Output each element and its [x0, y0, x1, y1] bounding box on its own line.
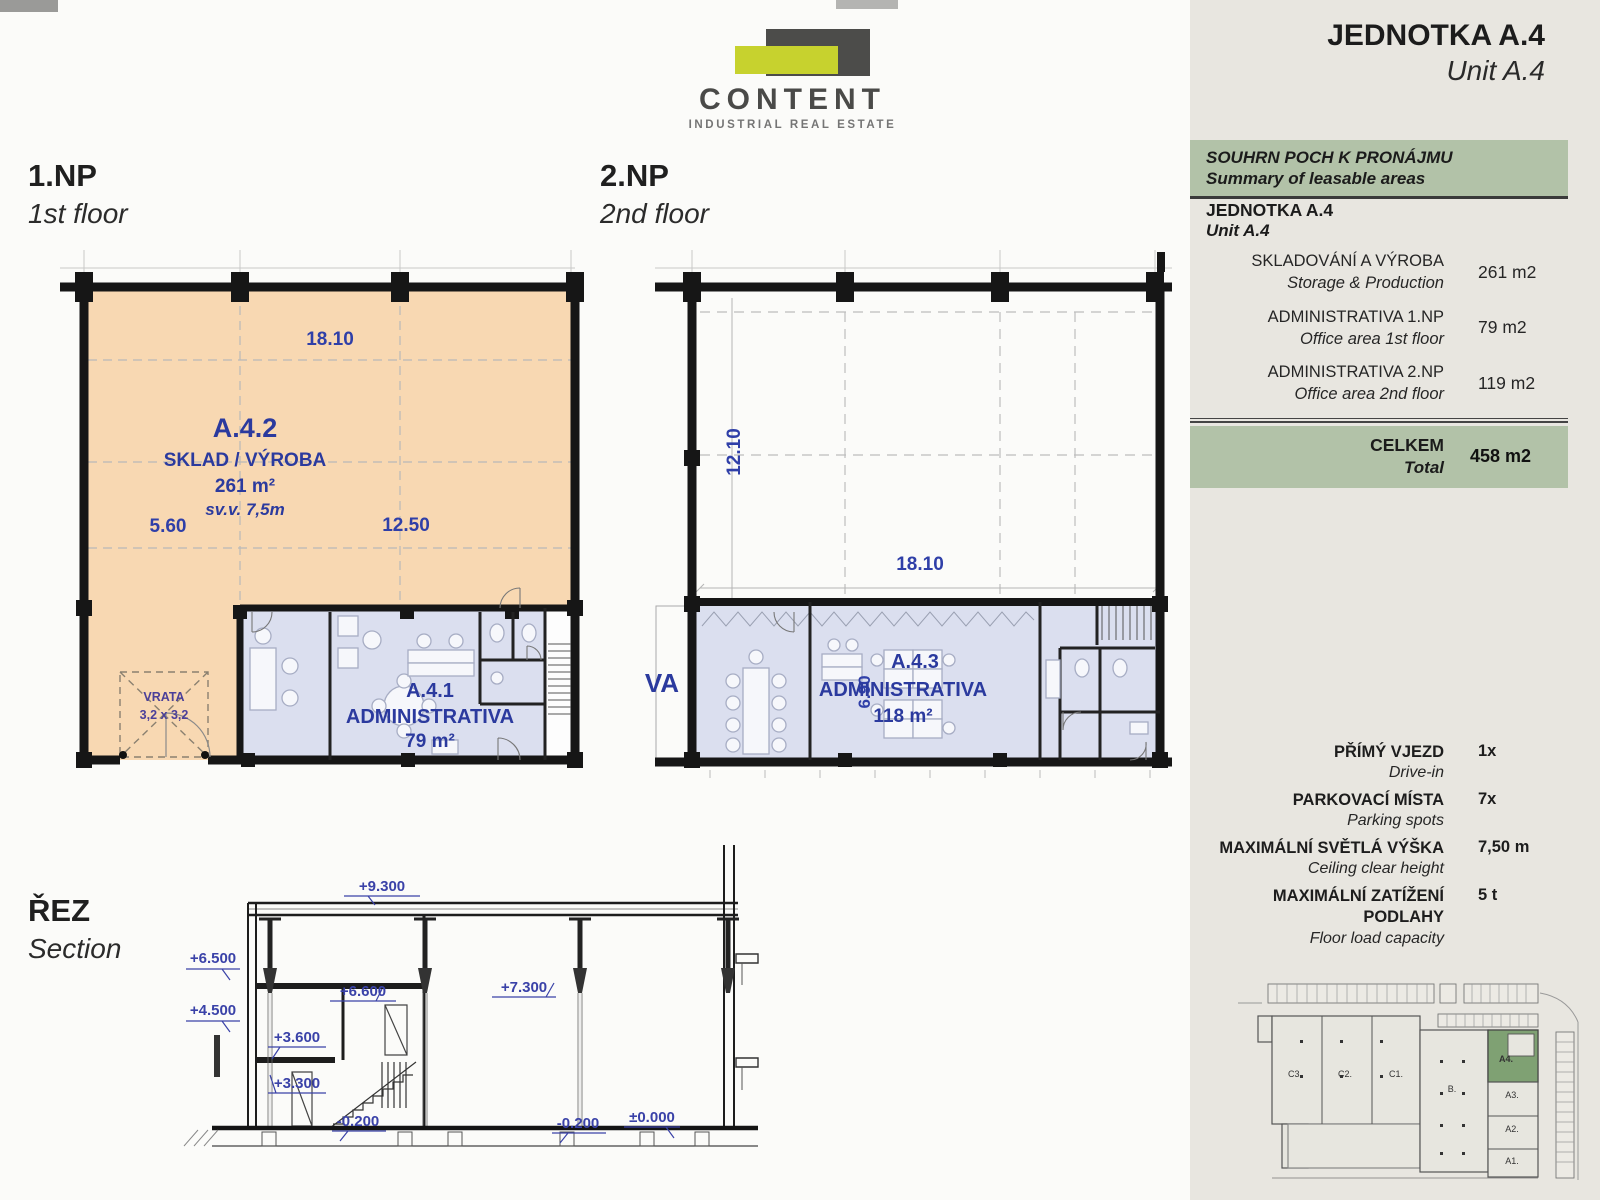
desk [408, 650, 474, 663]
level-3300: +3.300 [274, 1075, 320, 1092]
level-4500: +4.500 [190, 1002, 236, 1019]
gate-hinge [201, 751, 209, 759]
row-label: ADMINISTRATIVA 2.NP Office area 2nd floo… [1190, 361, 1460, 406]
total-divider [1190, 418, 1568, 423]
parking-strip [1268, 984, 1434, 1003]
chair [282, 690, 298, 706]
row-label-en: Office area 2nd floor [1190, 383, 1444, 405]
office2-name-label: ADMINISTRATIVA [819, 679, 987, 701]
table-row: ADMINISTRATIVA 1.NP Office area 1st floo… [1190, 306, 1600, 351]
wc-fixture [1075, 659, 1089, 677]
desk [822, 654, 862, 667]
office1-area-label: 79 m² [405, 731, 455, 752]
chair [772, 718, 786, 732]
floorplan-1st: 18.10 5.60 12.50 A.4.2 SKLAD / VÝROBA 26… [60, 250, 584, 768]
total-value: 458 m2 [1460, 434, 1568, 479]
level-6500: +6.500 [190, 950, 236, 967]
spec-value: 7x [1460, 790, 1600, 838]
level-leaders [186, 896, 680, 1143]
total-label-en: Total [1190, 457, 1444, 479]
armchair [338, 648, 358, 668]
building-lower [1288, 1124, 1420, 1168]
chair [772, 738, 786, 752]
level-7300: +7.300 [501, 979, 547, 996]
siteplan-label-a4: A4. [1499, 1054, 1513, 1064]
siteplan: C3. C2. C1. B. A4. A3. A2. A1. [1235, 950, 1600, 1185]
chair [449, 634, 463, 648]
total-row: CELKEM Total 458 m2 [1190, 426, 1568, 488]
floorplan-2nd: 12.10 18.10 6.90 A.4.3 ADMINISTRATIVA 11… [645, 250, 1172, 778]
chair [871, 654, 883, 666]
spec-label-en: Drive-in [1190, 763, 1444, 784]
a4-inner-structure [1508, 1034, 1534, 1056]
adjacent-unit-partial-label: VA [645, 668, 679, 698]
stair-area [545, 608, 571, 760]
row-label-en: Office area 1st floor [1190, 328, 1444, 350]
unit-row: JEDNOTKA A.4 Unit A.4 [1206, 200, 1333, 241]
desk [250, 648, 276, 710]
siteplan-label-c1: C1. [1389, 1069, 1403, 1079]
spec-label: PŘÍMÝ VJEZD Drive-in [1190, 742, 1460, 790]
row-label: SKLADOVÁNÍ A VÝROBA Storage & Production [1190, 250, 1460, 295]
chair [943, 722, 955, 734]
spec-row: MAXIMÁLNÍ SVĚTLÁ VÝŠKA Ceiling clear hei… [1190, 838, 1600, 886]
armchair [338, 616, 358, 636]
spec-row: PŘÍMÝ VJEZD Drive-in 1x [1190, 742, 1600, 790]
plan2-dim-top: 18.10 [896, 554, 944, 575]
spec-label-cz: PARKOVACÍ MÍSTA [1190, 790, 1444, 811]
bottom-ticks [710, 770, 1150, 778]
chair [417, 634, 431, 648]
chair [749, 650, 763, 664]
level-3600: +3.600 [274, 1029, 320, 1046]
unit-subtitle: Unit A.4 [1327, 54, 1545, 88]
chair [726, 738, 740, 752]
canopy-ledges [736, 954, 758, 1067]
spec-label-en: Floor load capacity [1190, 929, 1444, 950]
dimension-line-2 [655, 250, 1172, 275]
level-m0200-right: -0.200 [557, 1115, 600, 1132]
hall-code-label: A.4.2 [213, 413, 278, 443]
coffee-table [363, 631, 381, 649]
chair [726, 696, 740, 710]
wc-fixture [522, 624, 536, 642]
parking-strip [1464, 984, 1538, 1003]
building-b [1420, 1030, 1488, 1172]
siteplan-label-b: B. [1448, 1084, 1457, 1094]
spec-label-cz: MAXIMÁLNÍ SVĚTLÁ VÝŠKA [1190, 838, 1444, 859]
office1-name-label: ADMINISTRATIVA [346, 706, 514, 728]
spec-value: 5 t [1460, 886, 1600, 934]
spec-label-cz: PŘÍMÝ VJEZD [1190, 742, 1444, 763]
spec-label-en: Ceiling clear height [1190, 859, 1444, 880]
chair [255, 628, 271, 644]
summary-table: SKLADOVÁNÍ A VÝROBA Storage & Production… [1190, 250, 1600, 417]
building-annex [1258, 1016, 1272, 1042]
summary-sidebar: JEDNOTKA A.4 Unit A.4 SOUHRN POCH K PRON… [1190, 0, 1600, 1200]
wc-fixture [1113, 659, 1127, 677]
chair [943, 654, 955, 666]
plan1-dim-top: 18.10 [306, 329, 354, 350]
total-label-cz: CELKEM [1190, 434, 1444, 457]
spec-row: PARKOVACÍ MÍSTA Parking spots 7x [1190, 790, 1600, 838]
hall-area-label: 261 m² [215, 476, 275, 497]
chair [726, 674, 740, 688]
level-0000: ±0.000 [629, 1109, 675, 1126]
wc-fixture [490, 624, 504, 642]
spec-label-cz: MAXIMÁLNÍ ZATÍŽENÍ PODLAHY [1190, 886, 1444, 929]
siteplan-label-a1: A1. [1505, 1156, 1519, 1166]
row-label-cz: ADMINISTRATIVA 1.NP [1190, 306, 1444, 328]
column-tapers [263, 968, 735, 993]
level-m0200-left: -0.200 [337, 1113, 380, 1130]
chair [828, 639, 840, 651]
parking-strip [1556, 1032, 1574, 1178]
level-9300: +9.300 [359, 878, 405, 895]
gate-hinge [119, 751, 127, 759]
desk [1046, 660, 1060, 698]
unit-row-cz: JEDNOTKA A.4 [1206, 200, 1333, 221]
siteplan-label-c2: C2. [1338, 1069, 1352, 1079]
chair [772, 696, 786, 710]
sidebar-header: JEDNOTKA A.4 Unit A.4 [1327, 18, 1545, 88]
ground-hatch [184, 1130, 218, 1146]
unit-title: JEDNOTKA A.4 [1327, 18, 1545, 54]
footings [262, 1132, 709, 1146]
row-label: ADMINISTRATIVA 1.NP Office area 1st floo… [1190, 306, 1460, 351]
spec-label: MAXIMÁLNÍ ZATÍŽENÍ PODLAHY Floor load ca… [1190, 886, 1460, 934]
chair [282, 658, 298, 674]
row-value: 79 m2 [1460, 306, 1600, 351]
summary-header-cz: SOUHRN POCH K PRONÁJMU [1206, 147, 1568, 168]
table-row: SKLADOVÁNÍ A VÝROBA Storage & Production… [1190, 250, 1600, 295]
spec-label-en: Parking spots [1190, 811, 1444, 832]
column-stems [270, 919, 728, 968]
hall-height-label: sv.v. 7,5m [205, 500, 284, 519]
plan1-dim-right: 12.50 [382, 515, 430, 536]
spec-row: MAXIMÁLNÍ ZATÍŽENÍ PODLAHY Floor load ca… [1190, 886, 1600, 934]
office2-area-label: 118 m² [873, 706, 932, 727]
dim-reference-lines [696, 298, 1161, 598]
parking-strip [1440, 984, 1456, 1003]
window-mark [214, 1035, 220, 1077]
spec-value: 1x [1460, 742, 1600, 790]
plan2-dim-left: 12.10 [724, 428, 745, 476]
row-label-cz: SKLADOVÁNÍ A VÝROBA [1190, 250, 1444, 272]
chair [846, 639, 858, 651]
steel-columns [259, 919, 739, 1128]
plan1-dim-left: 5.60 [150, 516, 187, 537]
office2-code-label: A.4.3 [891, 651, 939, 673]
gate-label-2: 3,2 x 3,2 [140, 708, 189, 722]
table-row: ADMINISTRATIVA 2.NP Office area 2nd floo… [1190, 361, 1600, 406]
sink [491, 672, 503, 684]
chair [772, 674, 786, 688]
unit-row-en: Unit A.4 [1206, 221, 1333, 241]
section-drawing: +9.300 +6.500 +4.500 +6.600 +7.300 +3.60… [184, 845, 758, 1146]
row-value: 119 m2 [1460, 361, 1600, 406]
spec-value: 7,50 m [1460, 838, 1600, 886]
parking-strip [1438, 1014, 1538, 1027]
siteplan-label-c3: C3. [1288, 1069, 1302, 1079]
summary-header-en: Summary of leasable areas [1206, 168, 1568, 189]
office1-code-label: A.4.1 [406, 680, 454, 702]
siteplan-label-a2: A2. [1505, 1124, 1519, 1134]
meeting-table [743, 668, 769, 754]
dimension-line [60, 250, 575, 275]
cabinet [1130, 722, 1148, 734]
total-label: CELKEM Total [1190, 434, 1460, 479]
summary-header-band: SOUHRN POCH K PRONÁJMU Summary of leasab… [1190, 140, 1568, 199]
chair [726, 718, 740, 732]
hall-name-label: SKLAD / VÝROBA [164, 449, 327, 471]
row-label-en: Storage & Production [1190, 272, 1444, 294]
row-value: 261 m2 [1460, 250, 1600, 295]
desk [408, 663, 474, 676]
gate-label-1: VRATA [143, 690, 184, 704]
row-label-cz: ADMINISTRATIVA 2.NP [1190, 361, 1444, 383]
section-doors [292, 1005, 407, 1126]
brochure-page: CONTENT INDUSTRIAL REAL ESTATE 1.NP 1st … [0, 0, 1600, 1200]
specs-list: PŘÍMÝ VJEZD Drive-in 1x PARKOVACÍ MÍSTA … [1190, 742, 1600, 934]
level-6600: +6.600 [340, 983, 386, 1000]
spec-label: PARKOVACÍ MÍSTA Parking spots [1190, 790, 1460, 838]
siteplan-label-a3: A3. [1505, 1090, 1519, 1100]
spec-label: MAXIMÁLNÍ SVĚTLÁ VÝŠKA Ceiling clear hei… [1190, 838, 1460, 886]
